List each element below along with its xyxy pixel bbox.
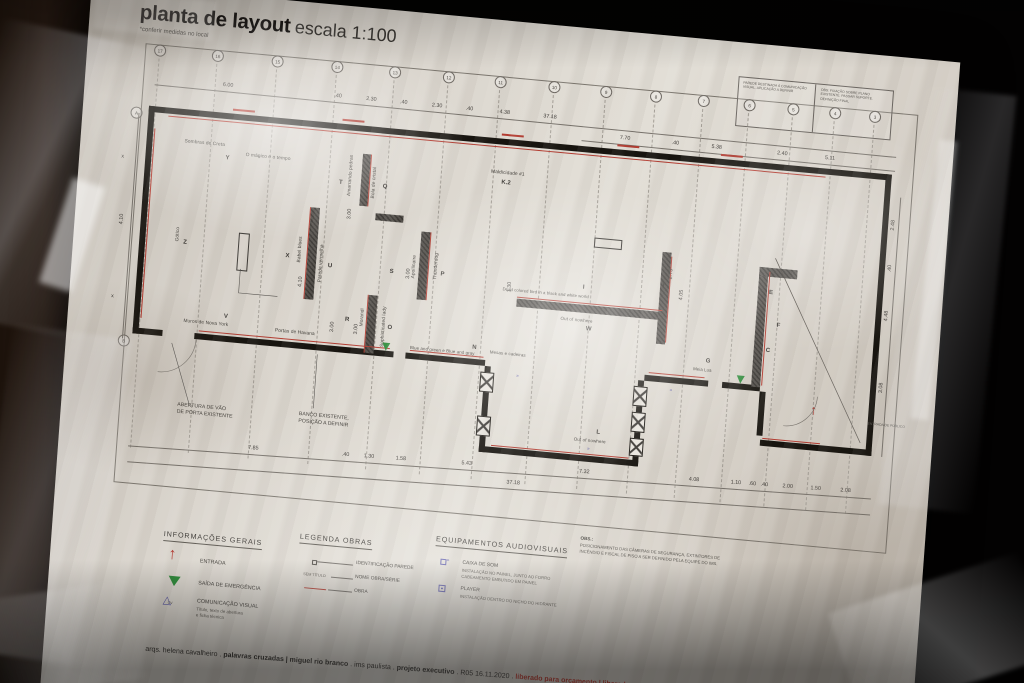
leader-lines — [40, 0, 960, 683]
plan-sheet: planta de layout escala 1:100 *conferir … — [40, 0, 960, 683]
photo-stage: planta de layout escala 1:100 *conferir … — [0, 0, 1024, 683]
